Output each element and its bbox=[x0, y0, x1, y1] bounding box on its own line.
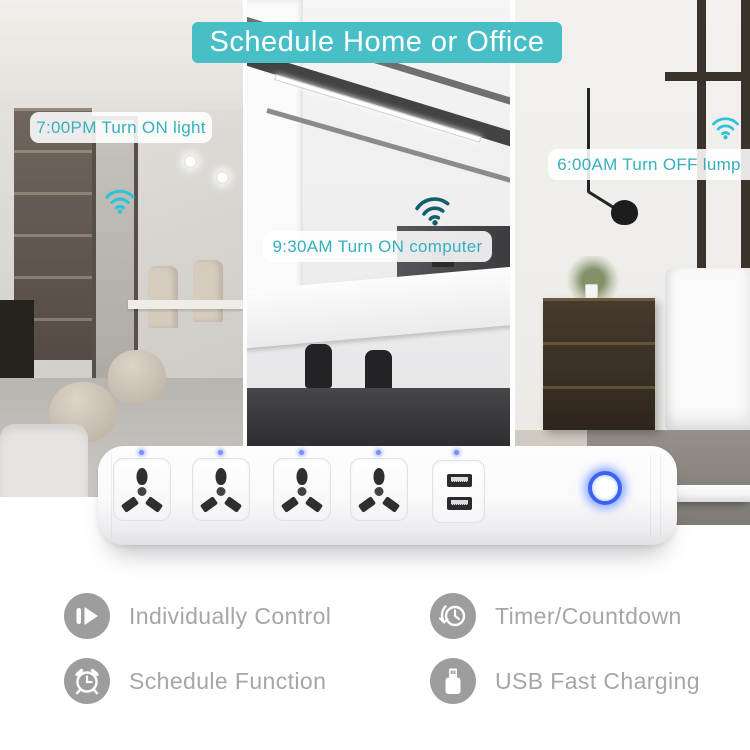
ottoman bbox=[108, 350, 166, 404]
feature-label: Schedule Function bbox=[129, 668, 326, 695]
feature-item: Schedule Function bbox=[64, 658, 430, 704]
power-strip bbox=[98, 446, 677, 545]
socket-pin-hole bbox=[217, 487, 226, 496]
feature-label: USB Fast Charging bbox=[495, 668, 700, 695]
usb-panel bbox=[432, 460, 485, 523]
status-led bbox=[376, 450, 381, 455]
socket-pin-hole bbox=[305, 496, 323, 513]
feature-item: Timer/Countdown bbox=[430, 593, 710, 639]
feature-item: Individually Control bbox=[64, 593, 430, 639]
socket-pin-hole bbox=[216, 468, 227, 485]
wifi-icon bbox=[710, 114, 741, 140]
socket-pin-hole bbox=[121, 496, 139, 513]
power-socket bbox=[273, 458, 331, 521]
dining-chair bbox=[193, 260, 223, 322]
power-cable bbox=[672, 485, 750, 502]
power-button bbox=[588, 471, 622, 505]
wall-lamp-shade bbox=[611, 200, 638, 225]
dining-table bbox=[128, 300, 243, 309]
body-seam bbox=[660, 454, 661, 537]
individually-control-icon bbox=[64, 593, 110, 639]
usb-port bbox=[447, 474, 472, 487]
status-led bbox=[139, 450, 144, 455]
socket-pin-hole bbox=[297, 468, 308, 485]
wifi-icon bbox=[103, 186, 137, 215]
bed-frame-bar bbox=[665, 72, 750, 81]
feature-label: Timer/Countdown bbox=[495, 603, 682, 630]
usb-port bbox=[447, 497, 472, 510]
timer-countdown-icon bbox=[430, 593, 476, 639]
feature-label: Individually Control bbox=[129, 603, 331, 630]
photo-living-room bbox=[0, 0, 243, 497]
caption-living-room: 7:00PM Turn ON light bbox=[30, 112, 212, 143]
socket-pin-hole bbox=[374, 468, 385, 485]
socket-pin-hole bbox=[145, 496, 163, 513]
status-led bbox=[218, 450, 223, 455]
office-chair bbox=[305, 344, 332, 388]
socket-pin-hole bbox=[137, 468, 148, 485]
power-socket bbox=[350, 458, 408, 521]
feature-item: USB Fast Charging bbox=[430, 658, 710, 704]
caption-bedroom: 6:00AM Turn OFF lump bbox=[548, 149, 750, 180]
socket-pin-hole bbox=[375, 487, 384, 496]
socket-pin-hole bbox=[298, 487, 307, 496]
socket-pin-hole bbox=[382, 496, 400, 513]
schedule-function-icon bbox=[64, 658, 110, 704]
pendant-light bbox=[216, 171, 229, 184]
power-socket bbox=[192, 458, 250, 521]
desk-shadow-band bbox=[247, 388, 510, 446]
dining-chair bbox=[148, 266, 178, 328]
pendant-light bbox=[184, 155, 197, 168]
socket-pin-hole bbox=[358, 496, 376, 513]
banner-title: Schedule Home or Office bbox=[192, 22, 562, 63]
socket-pin-hole bbox=[224, 496, 242, 513]
photo-office bbox=[247, 0, 510, 446]
nightstand bbox=[543, 298, 655, 430]
socket-pin-hole bbox=[281, 496, 299, 513]
socket-pin-hole bbox=[138, 487, 147, 496]
body-seam bbox=[650, 454, 651, 537]
status-led bbox=[299, 450, 304, 455]
bed bbox=[665, 268, 750, 430]
socket-pin-hole bbox=[200, 496, 218, 513]
sofa bbox=[0, 424, 88, 497]
product-infographic: Schedule Home or Office 7:00PM Turn ON l… bbox=[0, 0, 750, 750]
status-led bbox=[454, 450, 459, 455]
power-socket bbox=[113, 458, 171, 521]
caption-office: 9:30AM Turn ON computer bbox=[263, 231, 492, 262]
wifi-icon bbox=[411, 190, 456, 230]
features-list: Individually Control Timer/Countdown bbox=[64, 593, 710, 704]
usb-fast-charging-icon bbox=[430, 658, 476, 704]
